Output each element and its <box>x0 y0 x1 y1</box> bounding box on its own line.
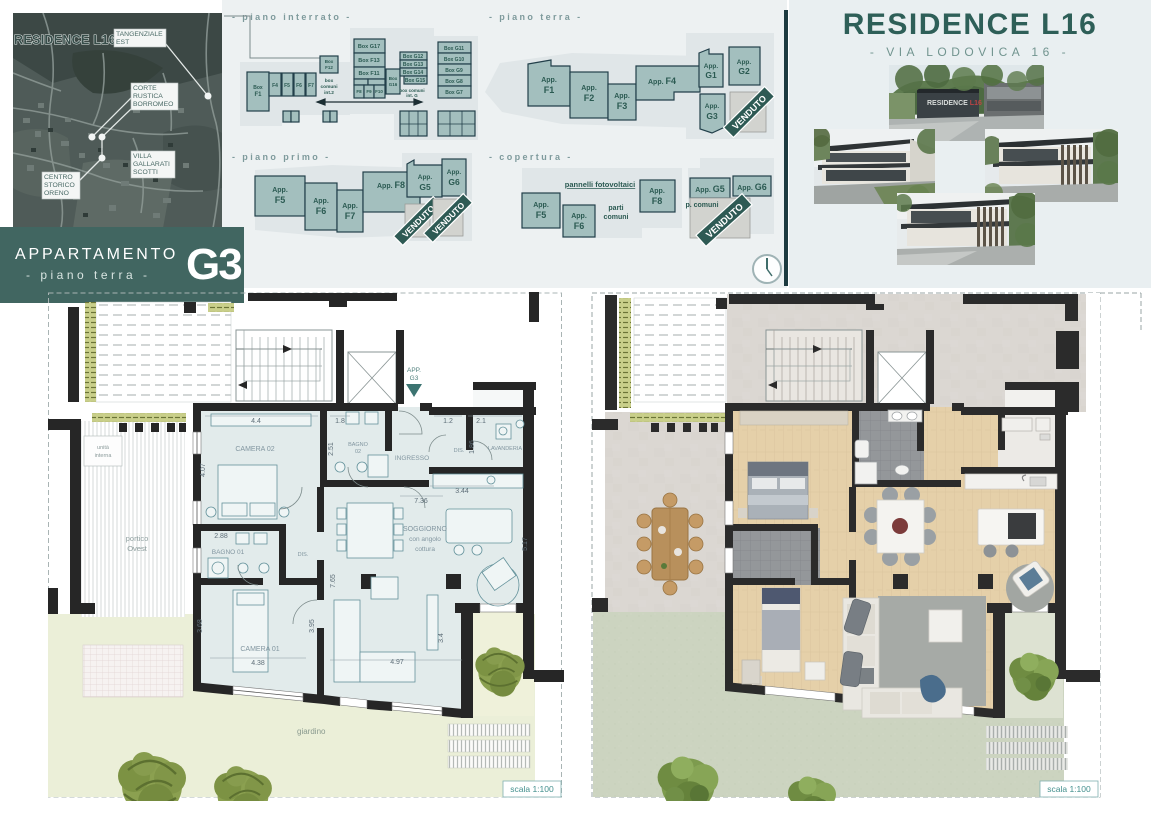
svg-text:App.: App. <box>704 63 719 70</box>
svg-text:Box: Box <box>253 85 263 91</box>
svg-text:giardino: giardino <box>297 727 326 736</box>
svg-text:RESIDENCE L16: RESIDENCE L16 <box>14 33 116 47</box>
svg-text:scala 1:100: scala 1:100 <box>510 784 554 794</box>
svg-text:App.: App. <box>313 198 329 205</box>
svg-text:F5: F5 <box>536 210 547 220</box>
svg-text:G6: G6 <box>448 177 460 187</box>
svg-text:1.2: 1.2 <box>443 418 453 425</box>
svg-text:INGRESSO: INGRESSO <box>395 455 429 462</box>
svg-text:App.: App. <box>649 188 665 195</box>
svg-text:F8: F8 <box>356 89 362 94</box>
svg-text:App.: App. <box>614 93 630 100</box>
svg-text:4.07: 4.07 <box>200 463 207 477</box>
svg-text:Box G10: Box G10 <box>444 57 465 63</box>
svg-text:pannelli fotovoltaici: pannelli fotovoltaici <box>565 180 635 189</box>
svg-text:STORICO: STORICO <box>44 182 75 189</box>
svg-text:Box G11: Box G11 <box>444 46 464 52</box>
svg-text:BORROMEO: BORROMEO <box>133 101 173 108</box>
svg-text:int.2: int.2 <box>324 90 334 96</box>
svg-text:BAGNO: BAGNO <box>348 442 369 448</box>
svg-text:F1: F1 <box>254 92 262 98</box>
svg-text:Box F11: Box F11 <box>358 71 379 77</box>
svg-text:App.: App. <box>705 103 720 110</box>
svg-text:portico: portico <box>126 534 149 543</box>
svg-text:5.17: 5.17 <box>522 537 529 551</box>
svg-text:box: box <box>325 78 334 84</box>
svg-text:RESIDENCE L16: RESIDENCE L16 <box>927 100 982 107</box>
svg-text:Box: Box <box>389 76 398 81</box>
svg-text:F2: F2 <box>584 93 595 103</box>
svg-text:RUSTICA: RUSTICA <box>133 93 163 100</box>
svg-text:G5: G5 <box>419 182 431 192</box>
svg-text:LAVANDERIA: LAVANDERIA <box>488 446 522 452</box>
svg-text:CAMERA 02: CAMERA 02 <box>235 446 274 453</box>
svg-text:Box G8: Box G8 <box>445 79 463 85</box>
svg-text:Box G13: Box G13 <box>403 62 424 68</box>
svg-text:unità: unità <box>97 445 110 451</box>
svg-text:G3: G3 <box>706 111 718 121</box>
svg-text:DIS.: DIS. <box>298 552 309 558</box>
svg-text:F7: F7 <box>308 83 314 89</box>
svg-text:F6: F6 <box>316 206 327 216</box>
svg-text:F12: F12 <box>325 65 333 70</box>
svg-text:4.38: 4.38 <box>251 660 265 667</box>
svg-text:CAMERA 01: CAMERA 01 <box>240 646 279 653</box>
svg-text:Box G12: Box G12 <box>403 54 424 60</box>
svg-text:F5: F5 <box>284 83 290 89</box>
svg-text:Box G15: Box G15 <box>405 78 426 84</box>
svg-text:F10: F10 <box>375 89 383 94</box>
svg-text:3.68: 3.68 <box>197 619 204 633</box>
svg-text:1.86: 1.86 <box>469 440 476 454</box>
svg-text:Ovest: Ovest <box>127 544 148 553</box>
svg-text:con angolo: con angolo <box>409 536 441 543</box>
svg-text:comuni: comuni <box>604 214 629 221</box>
svg-text:CENTRO: CENTRO <box>44 174 73 181</box>
svg-text:Box G14: Box G14 <box>403 70 424 76</box>
svg-text:F6: F6 <box>296 83 302 89</box>
svg-text:2.1: 2.1 <box>476 418 486 425</box>
svg-text:scala 1:100: scala 1:100 <box>1047 784 1091 794</box>
svg-text:F3: F3 <box>617 101 628 111</box>
svg-text:G2: G2 <box>738 66 750 76</box>
svg-text:G3: G3 <box>410 375 419 382</box>
svg-text:cottura: cottura <box>415 546 435 553</box>
svg-text:F1: F1 <box>544 85 555 95</box>
svg-text:App.: App. <box>541 77 557 84</box>
svg-text:App.: App. <box>737 59 752 66</box>
svg-text:7.36: 7.36 <box>414 498 428 505</box>
svg-text:EST: EST <box>116 39 129 46</box>
svg-text:1.8: 1.8 <box>335 418 345 425</box>
svg-text:Box F13: Box F13 <box>358 58 379 64</box>
svg-text:SOGGIORNO: SOGGIORNO <box>403 526 448 533</box>
svg-text:F8: F8 <box>652 196 663 206</box>
svg-text:F5: F5 <box>275 195 286 205</box>
svg-text:App.: App. <box>571 213 587 220</box>
svg-text:App.: App. <box>581 85 597 92</box>
svg-text:VILLA: VILLA <box>133 153 152 160</box>
svg-text:7.65: 7.65 <box>330 574 337 588</box>
svg-text:SCOTTI: SCOTTI <box>133 169 158 176</box>
svg-text:App.: App. <box>447 169 462 176</box>
svg-text:APP.: APP. <box>407 367 421 374</box>
svg-text:p. comuni: p. comuni <box>685 202 718 209</box>
svg-text:3.4: 3.4 <box>438 633 445 643</box>
svg-text:BAGNO 01: BAGNO 01 <box>212 549 245 556</box>
svg-text:CORTE: CORTE <box>133 85 157 92</box>
svg-text:2.51: 2.51 <box>328 442 335 456</box>
svg-text:App.: App. <box>533 202 549 209</box>
svg-text:3.95: 3.95 <box>309 619 316 633</box>
svg-text:ORENO: ORENO <box>44 190 69 197</box>
svg-text:G16: G16 <box>389 82 398 87</box>
svg-text:Box: Box <box>325 59 334 64</box>
svg-text:Box G7: Box G7 <box>445 90 463 96</box>
svg-text:4.4: 4.4 <box>251 418 261 425</box>
svg-text:F4: F4 <box>272 83 278 89</box>
svg-text:App.: App. <box>272 187 288 194</box>
svg-text:interna: interna <box>95 453 113 459</box>
svg-text:App.: App. <box>342 203 358 210</box>
svg-text:Box G17: Box G17 <box>358 44 380 50</box>
svg-text:3.44: 3.44 <box>455 488 469 495</box>
svg-text:TANGENZIALE: TANGENZIALE <box>116 31 163 38</box>
svg-text:F9: F9 <box>366 89 372 94</box>
svg-text:comuni: comuni <box>320 84 337 90</box>
svg-text:DIS.: DIS. <box>454 448 465 454</box>
svg-text:F7: F7 <box>345 211 356 221</box>
svg-text:Box G9: Box G9 <box>445 68 463 74</box>
svg-text:parti: parti <box>608 205 623 212</box>
svg-text:App.: App. <box>418 174 433 181</box>
svg-text:int. G: int. G <box>406 93 418 98</box>
svg-text:02: 02 <box>355 449 361 455</box>
svg-text:2.88: 2.88 <box>214 533 228 540</box>
svg-text:G1: G1 <box>705 70 717 80</box>
svg-text:F6: F6 <box>574 221 585 231</box>
svg-text:GALLARATI: GALLARATI <box>133 161 170 168</box>
